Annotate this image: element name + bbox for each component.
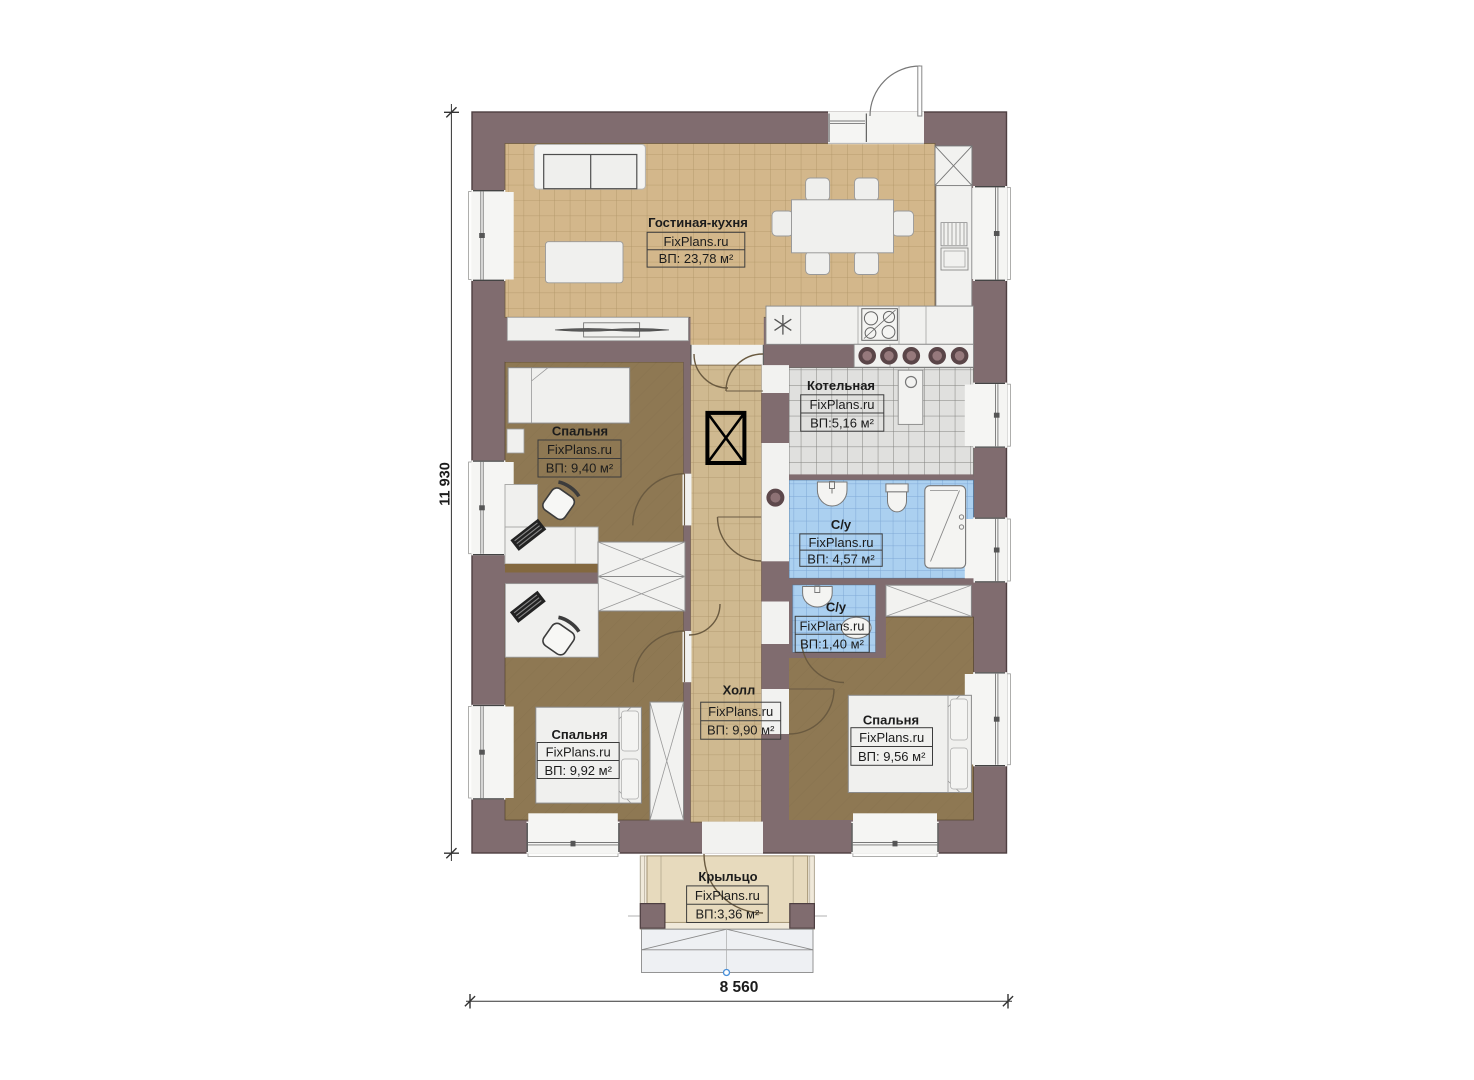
svg-text:Котельная: Котельная [807, 378, 875, 393]
svg-text:Спальня: Спальня [552, 424, 608, 439]
svg-text:ВП:3,36 м²: ВП:3,36 м² [695, 906, 759, 921]
svg-text:FixPlans.ru: FixPlans.ru [695, 888, 760, 903]
svg-text:ВП: 9,40 м²: ВП: 9,40 м² [546, 461, 614, 476]
svg-text:С/у: С/у [831, 517, 852, 532]
svg-text:FixPlans.ru: FixPlans.ru [799, 619, 864, 634]
svg-text:FixPlans.ru: FixPlans.ru [546, 745, 611, 760]
svg-text:ВП: 9,92 м²: ВП: 9,92 м² [544, 763, 612, 778]
svg-text:8 560: 8 560 [720, 979, 759, 996]
svg-text:ВП:1,40 м²: ВП:1,40 м² [800, 637, 864, 652]
svg-text:ВП: 4,57 м²: ВП: 4,57 м² [807, 551, 875, 566]
svg-text:ВП: 23,78 м²: ВП: 23,78 м² [659, 251, 734, 266]
svg-text:Спальня: Спальня [863, 713, 919, 728]
svg-text:FixPlans.ru: FixPlans.ru [809, 397, 874, 412]
svg-text:Холл: Холл [723, 683, 756, 698]
svg-text:Крыльцо: Крыльцо [698, 869, 757, 884]
svg-text:С/у: С/у [826, 600, 847, 615]
svg-text:Гостиная-кухня: Гостиная-кухня [648, 215, 748, 230]
svg-text:FixPlans.ru: FixPlans.ru [708, 704, 773, 719]
svg-text:11 930: 11 930 [438, 462, 454, 506]
svg-text:FixPlans.ru: FixPlans.ru [859, 730, 924, 745]
svg-text:FixPlans.ru: FixPlans.ru [808, 535, 873, 550]
svg-text:FixPlans.ru: FixPlans.ru [547, 442, 612, 457]
svg-text:Спальня: Спальня [552, 727, 608, 742]
svg-text:ВП:5,16 м²: ВП:5,16 м² [810, 415, 874, 430]
svg-text:FixPlans.ru: FixPlans.ru [663, 234, 728, 249]
svg-text:ВП: 9,56 м²: ВП: 9,56 м² [858, 749, 926, 764]
svg-text:ВП: 9,90 м²: ВП: 9,90 м² [707, 723, 775, 738]
